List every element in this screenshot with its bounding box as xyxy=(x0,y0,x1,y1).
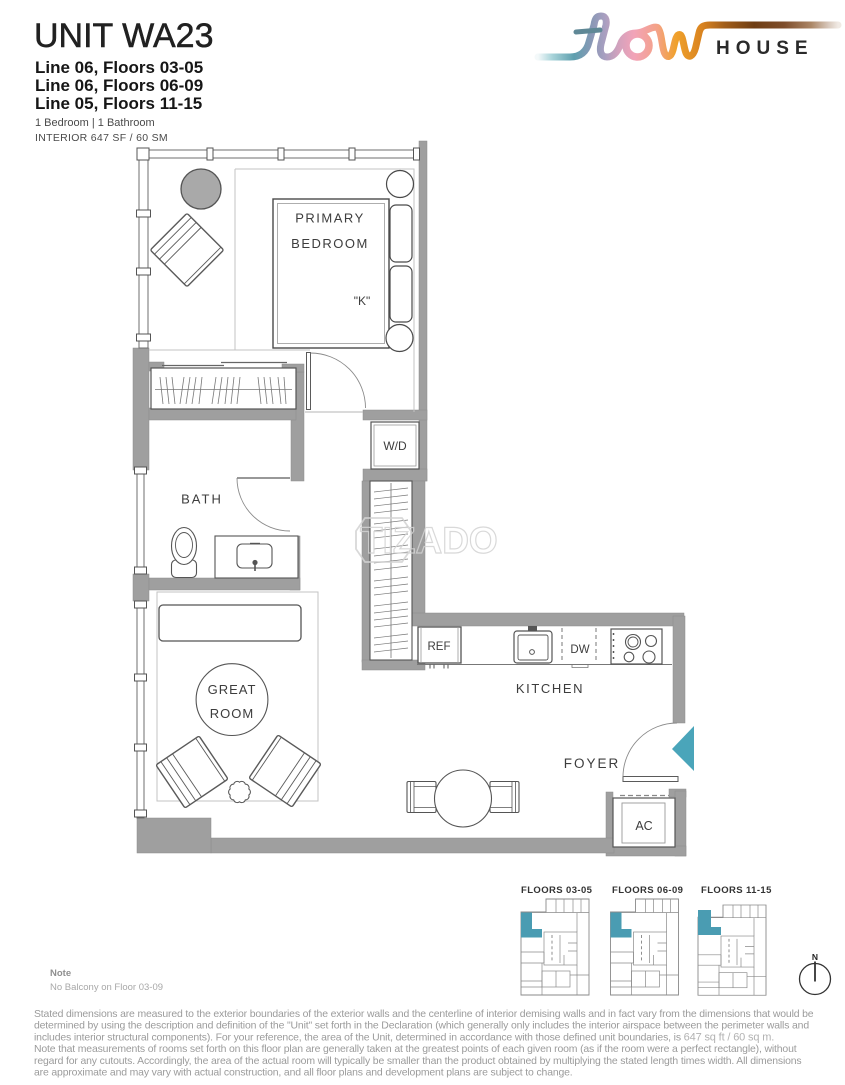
svg-text:HOUSE: HOUSE xyxy=(716,38,814,59)
svg-text:INTERIOR 647 SF / 60 SM: INTERIOR 647 SF / 60 SM xyxy=(35,132,168,144)
svg-text:are approximate and may vary w: are approximate and may vary with actual… xyxy=(34,1068,573,1079)
svg-text:REF: REF xyxy=(428,641,451,653)
svg-text:Note: Note xyxy=(50,968,71,979)
svg-text:W/D: W/D xyxy=(383,439,407,453)
svg-text:regard for any cutouts. Accor: regard for any cutouts. Accordingly, the… xyxy=(34,1056,802,1067)
svg-text:determined by using the descri: determined by using the description and … xyxy=(34,1021,809,1032)
svg-text:BATH: BATH xyxy=(181,492,223,507)
svg-text:"K": "K" xyxy=(354,294,371,308)
svg-text:1 Bedroom | 1 Bathroom: 1 Bedroom | 1 Bathroom xyxy=(35,117,155,129)
svg-text:Line 06, Floors 06-09: Line 06, Floors 06-09 xyxy=(35,76,203,95)
svg-text:DW: DW xyxy=(570,644,589,656)
svg-text:FLOORS 11-15: FLOORS 11-15 xyxy=(701,885,772,896)
svg-text:N: N xyxy=(812,952,818,962)
svg-text:includes interior structural c: includes interior structural components)… xyxy=(34,1031,774,1043)
svg-text:BEDROOM: BEDROOM xyxy=(291,236,369,251)
svg-text:PRIMARY: PRIMARY xyxy=(295,211,365,226)
svg-text:FOYER: FOYER xyxy=(564,756,621,771)
svg-text:AC: AC xyxy=(635,819,652,833)
svg-text:ROOM: ROOM xyxy=(210,706,254,721)
svg-text:No Balcony on Floor 03-09: No Balcony on Floor 03-09 xyxy=(50,982,163,993)
svg-text:Note that measurements of room: Note that measurements of rooms set fort… xyxy=(34,1044,797,1055)
svg-text:KITCHEN: KITCHEN xyxy=(516,681,584,696)
svg-text:TIZADO: TIZADO xyxy=(360,520,498,561)
svg-text:Stated dimensions are measured: Stated dimensions are measured to the ex… xyxy=(34,1009,814,1020)
svg-text:FLOORS 06-09: FLOORS 06-09 xyxy=(612,885,683,896)
svg-text:FLOORS 03-05: FLOORS 03-05 xyxy=(521,885,593,896)
svg-text:UNIT WA23: UNIT WA23 xyxy=(34,17,213,55)
svg-text:Line 06, Floors 03-05: Line 06, Floors 03-05 xyxy=(35,58,203,77)
svg-text:GREAT: GREAT xyxy=(208,682,257,697)
svg-text:Line 05, Floors 11-15: Line 05, Floors 11-15 xyxy=(35,94,202,113)
